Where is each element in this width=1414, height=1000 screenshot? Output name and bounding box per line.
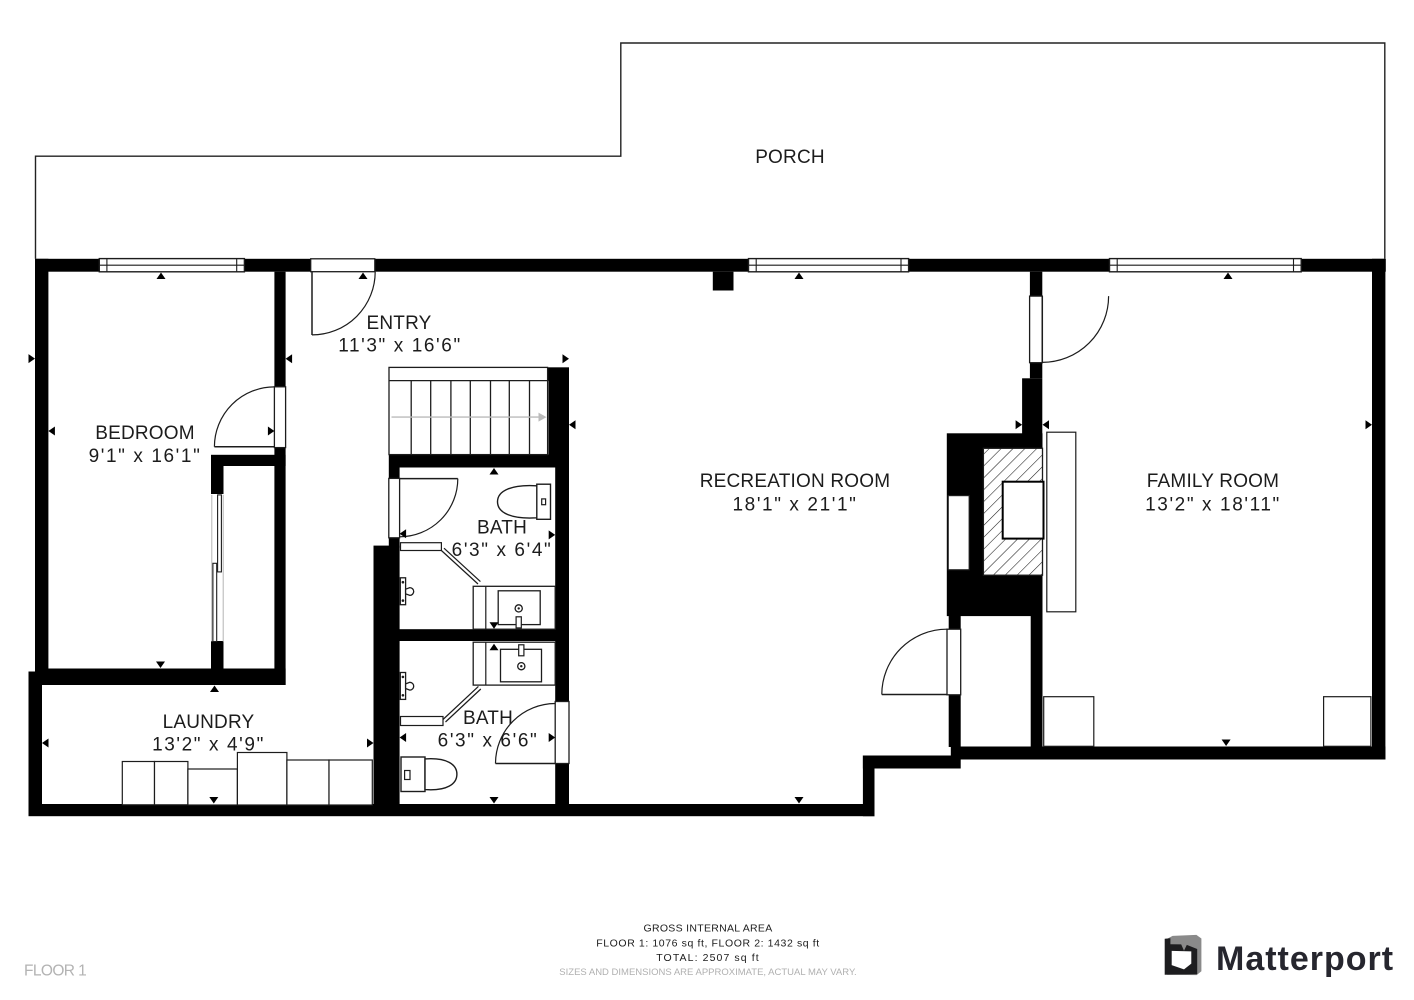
svg-text:FLOOR 1: FLOOR 1	[24, 963, 86, 980]
svg-text:RECREATION ROOM: RECREATION ROOM	[700, 471, 891, 492]
svg-text:FLOOR 1: 1076 sq ft, FLOOR 2:: FLOOR 1: 1076 sq ft, FLOOR 2: 1432 sq ft	[596, 938, 820, 950]
svg-text:GROSS INTERNAL AREA: GROSS INTERNAL AREA	[643, 923, 772, 935]
svg-text:BATH: BATH	[463, 708, 513, 729]
svg-text:BEDROOM: BEDROOM	[95, 423, 195, 444]
svg-text:18'1" x 21'1": 18'1" x 21'1"	[732, 495, 857, 516]
svg-text:TOTAL: 2507 sq ft: TOTAL: 2507 sq ft	[656, 952, 760, 964]
svg-text:SIZES AND DIMENSIONS ARE APPRO: SIZES AND DIMENSIONS ARE APPROXIMATE, AC…	[559, 967, 856, 978]
svg-text:PORCH: PORCH	[755, 147, 825, 168]
svg-text:9'1" x 16'1": 9'1" x 16'1"	[89, 446, 202, 467]
svg-text:13'2" x 4'9": 13'2" x 4'9"	[152, 735, 265, 756]
svg-text:FAMILY ROOM: FAMILY ROOM	[1147, 471, 1279, 492]
svg-text:BATH: BATH	[477, 518, 527, 539]
svg-text:ENTRY: ENTRY	[366, 313, 431, 334]
svg-text:Matterport: Matterport	[1216, 940, 1394, 978]
svg-text:6'3" x 6'4": 6'3" x 6'4"	[452, 540, 553, 561]
svg-text:13'2" x 18'11": 13'2" x 18'11"	[1145, 495, 1281, 516]
svg-text:11'3" x 16'6": 11'3" x 16'6"	[338, 336, 462, 357]
svg-text:LAUNDRY: LAUNDRY	[163, 712, 255, 733]
svg-text:6'3" x 6'6": 6'3" x 6'6"	[438, 731, 539, 752]
